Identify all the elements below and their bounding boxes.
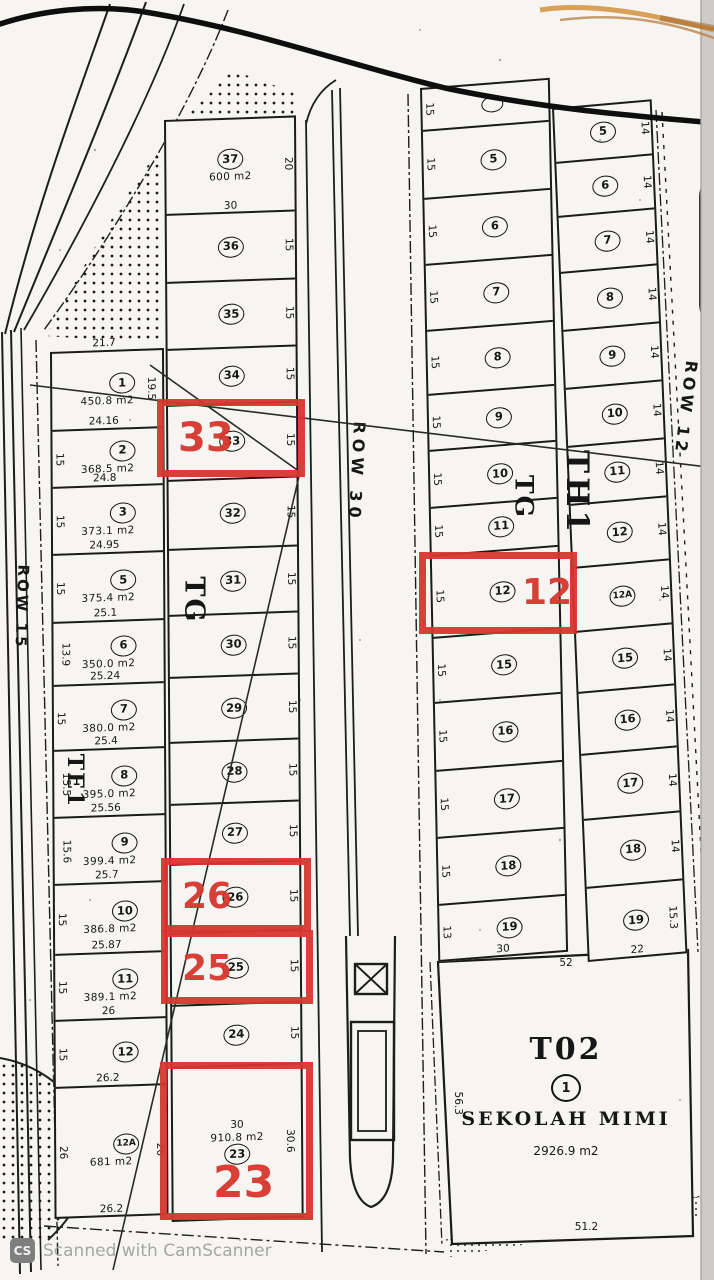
plot-number: 28 xyxy=(221,761,247,783)
plot-area-label: 375.4 m2 xyxy=(81,591,135,605)
dimension-label: 15 xyxy=(430,415,441,429)
plot-cell: 1615 xyxy=(435,692,562,770)
highlight-number: 26 xyxy=(182,879,232,915)
plot-number: 9 xyxy=(599,344,626,367)
highlight-number: 33 xyxy=(178,418,234,458)
dimension-label: 19.5 xyxy=(145,377,156,401)
plot-cell: 3415 xyxy=(168,344,296,404)
dimension-label: 20 xyxy=(282,157,293,171)
school-block-code: T02 xyxy=(529,1032,602,1067)
plot-number: 12A xyxy=(113,1133,139,1155)
dimension-label: 15 xyxy=(283,238,294,252)
plot-number: 10 xyxy=(601,402,628,425)
dimension-label: 14 xyxy=(658,585,669,599)
dimension-label: 51.2 xyxy=(575,1222,598,1233)
camscanner-text: Scanned with CamScanner xyxy=(43,1241,272,1261)
plot-number: 6 xyxy=(592,174,619,197)
plot-number: 19 xyxy=(496,916,522,939)
plot-number: 12A xyxy=(609,584,636,607)
highlight-box-plot-33: 33 xyxy=(157,399,305,477)
dimension-label: 14 xyxy=(661,647,672,661)
dimension-label: 15 xyxy=(285,504,296,518)
dimension-label: 15 xyxy=(285,572,296,586)
dimension-label: 15 xyxy=(55,711,66,725)
plot-number xyxy=(481,95,503,113)
plot-cell: 915 xyxy=(428,384,555,450)
plot-number: 24 xyxy=(223,1024,249,1046)
plot-number: 8 xyxy=(111,765,137,787)
highlight-number: 12 xyxy=(522,575,572,611)
dimension-label: 13.9 xyxy=(60,642,71,666)
dimension-label: 14 xyxy=(669,839,680,853)
plot-cell: 814 xyxy=(561,263,659,329)
plot-number: 12 xyxy=(113,1041,139,1063)
dimension-label: 25.7 xyxy=(92,870,121,882)
block-label-tg-west: TG xyxy=(179,576,210,623)
dimension-label: 15 xyxy=(57,981,68,995)
plot-cell: 1714 xyxy=(581,745,679,818)
plot-cell: 615 xyxy=(424,188,551,264)
dimension-label: 15 xyxy=(438,797,449,811)
plot-number: 15 xyxy=(491,653,517,676)
plot-number: 32 xyxy=(220,502,246,524)
dimension-label: 26.2 xyxy=(100,1203,123,1214)
dimension-label: 15 xyxy=(55,582,66,596)
dimension-label: 24.8 xyxy=(90,473,119,485)
dimension-label: 15 xyxy=(287,763,298,777)
dimension-label: 26 xyxy=(99,1006,118,1017)
dimension-label: 14 xyxy=(650,403,661,417)
plot-cell: 3515 xyxy=(167,277,295,348)
plot-cell: 2815 xyxy=(170,737,298,803)
plot-number: 11 xyxy=(112,968,138,990)
dimension-label: 15 xyxy=(435,663,446,677)
plot-number: 34 xyxy=(219,365,245,387)
plot-cell: 614 xyxy=(556,153,654,215)
dimension-label: 15.6 xyxy=(61,839,72,863)
dimension-label: 25.87 xyxy=(88,940,124,952)
plot-cell: 815 xyxy=(427,320,554,394)
dimension-label: 14 xyxy=(641,175,652,189)
plot-cell: 1814 xyxy=(584,810,682,886)
dimension-label: 15 xyxy=(54,514,65,528)
plot-cell: 2415 xyxy=(172,1000,300,1066)
dimension-label: 14 xyxy=(643,230,654,244)
plot-area-label: 600 m2 xyxy=(209,170,252,183)
plot-number: 5 xyxy=(110,569,136,591)
dimension-label: 15 xyxy=(437,729,448,743)
plot-cell: 1915.322 xyxy=(587,878,686,959)
plot-number: 8 xyxy=(484,346,510,369)
plot-number: 7 xyxy=(594,229,621,252)
highlight-number: 25 xyxy=(182,951,232,987)
plot-number: 29 xyxy=(221,697,247,719)
plot-number: 11 xyxy=(604,460,631,483)
plot-number: 17 xyxy=(617,771,644,794)
road-label-row15: ROW 15 xyxy=(12,564,33,650)
plot-number: 9 xyxy=(486,406,512,429)
plot-cell: 914 xyxy=(563,321,661,387)
plot-cell: 26.212A681 m2262626.2 xyxy=(56,1083,167,1217)
dimension-label: 15 xyxy=(283,305,294,319)
dimension-label: 15 xyxy=(429,355,440,369)
plot-number: 18 xyxy=(620,838,647,861)
plot-number: 30 xyxy=(221,634,247,656)
plot-number: 16 xyxy=(614,708,641,731)
plot-number: 12 xyxy=(606,520,633,543)
camscanner-watermark: CS Scanned with CamScanner xyxy=(10,1238,272,1263)
plot-cell: 1815 xyxy=(438,827,565,904)
plot-cell: 3615 xyxy=(167,209,295,281)
plot-column-col3: 1551561571581591510151115121515151615171… xyxy=(420,78,568,962)
highlight-box-plot-26: 26 xyxy=(161,858,311,932)
plot-cell: 37600 m22030 xyxy=(166,117,295,213)
plot-number: 8 xyxy=(597,286,624,309)
block-label-te1: TE1 xyxy=(62,754,88,808)
dimension-label: 15 xyxy=(425,157,436,171)
plot-number: 7 xyxy=(111,699,137,721)
dimension-label: 15 xyxy=(424,102,435,116)
plot-number: 2 xyxy=(109,440,135,462)
plot-area-label: 373.1 m2 xyxy=(81,524,135,538)
dimension-label: 13 xyxy=(441,925,452,939)
dimension-label: 26 xyxy=(58,1146,69,1160)
plot-cell: 714 xyxy=(559,207,657,271)
plot-area-label: 399.4 m2 xyxy=(83,854,137,868)
plot-area-label: 450.8 m2 xyxy=(80,394,134,408)
plot-number: 16 xyxy=(492,720,518,743)
school-plot: 52 T02 1 SEKOLAH MIMI 2926.9 m2 51.2 56.… xyxy=(438,950,694,1246)
dimension-label: 15.3 xyxy=(666,905,677,929)
plot-number: 5 xyxy=(590,120,617,143)
dimension-label: 15 xyxy=(287,824,298,838)
dimension-label: 14 xyxy=(655,521,666,535)
plot-number: 3 xyxy=(110,502,136,524)
plot-number: 9 xyxy=(112,832,138,854)
plot-number: 6 xyxy=(110,635,136,657)
dimension-label: 15 xyxy=(440,864,451,878)
dimension-label: 24.95 xyxy=(86,540,122,552)
school-area-label: 2926.9 m2 xyxy=(533,1144,598,1158)
dimension-label: 15 xyxy=(433,524,444,538)
highlight-number: 23 xyxy=(213,1161,274,1205)
dimension-label: 14 xyxy=(653,461,664,475)
dimension-label: 25.56 xyxy=(88,803,124,815)
dimension-label: 56.3 xyxy=(452,1092,463,1115)
dimension-label: 25.4 xyxy=(91,736,120,748)
school-name: SEKOLAH MIMI xyxy=(461,1108,670,1130)
plot-area-label: 386.8 m2 xyxy=(83,922,137,936)
plot-area-label: 389.1 m2 xyxy=(84,990,138,1004)
dimension-label: 15 xyxy=(286,636,297,650)
dimension-label: 15 xyxy=(428,290,439,304)
school-plot-number: 1 xyxy=(551,1074,581,1102)
dimension-label: 15 xyxy=(284,367,295,381)
camscanner-badge: CS xyxy=(10,1238,35,1263)
plot-cell: 2915 xyxy=(170,672,298,741)
plot-number: 18 xyxy=(495,854,521,877)
plot-number: 1 xyxy=(109,372,135,394)
plot-cell: 515 xyxy=(423,120,550,198)
dimension-label: 26.2 xyxy=(93,1073,122,1085)
dimension-label: 15 xyxy=(286,699,297,713)
dimension-label: 21.7 xyxy=(89,338,118,350)
dimension-label: 25.1 xyxy=(91,608,120,620)
plot-cell: 1515 xyxy=(433,627,560,702)
plot-number: 35 xyxy=(218,303,244,325)
plot-number: 15 xyxy=(612,646,639,669)
plot-number: 7 xyxy=(483,281,509,304)
plot-number: 6 xyxy=(482,215,508,238)
highlight-box-plot-12: 12 xyxy=(419,552,577,634)
plot-column-col2: 37600 m220303615351534153315321531153015… xyxy=(164,115,304,1222)
plot-number: 10 xyxy=(112,900,138,922)
dimension-label: 15 xyxy=(426,224,437,238)
plot-cell: 715 xyxy=(426,254,553,330)
block-label-th1: TH1 xyxy=(559,450,595,536)
dimension-label: 14 xyxy=(666,772,677,786)
plot-cell: 1715 xyxy=(436,760,563,837)
plot-cell: 1514 xyxy=(576,622,674,691)
dimension-label: 15 xyxy=(56,913,67,927)
plot-number: 17 xyxy=(494,787,520,810)
scanned-plot-map: 21.71450.8 m219.524.162368.5 m21524.8337… xyxy=(0,0,714,1280)
plot-area-label: 350.0 m2 xyxy=(82,657,136,671)
dimension-label: 14 xyxy=(646,287,657,301)
plot-cell: 1014 xyxy=(566,379,664,445)
plot-number: 5 xyxy=(480,148,506,171)
plot-cell: 3215 xyxy=(169,475,297,548)
plot-number: 36 xyxy=(218,236,244,258)
plot-cell: 1614 xyxy=(578,683,676,753)
plot-number: 37 xyxy=(217,148,243,170)
dimension-label: 15 xyxy=(431,472,442,486)
highlight-box-plot-25: 25 xyxy=(161,930,313,1004)
plot-area-label: 380.0 m2 xyxy=(82,721,136,735)
dimension-label: 14 xyxy=(639,121,650,135)
plot-number: 31 xyxy=(220,570,246,592)
dimension-label: 24.16 xyxy=(86,416,122,428)
plot-cell: 12A14 xyxy=(573,558,671,630)
plot-number: 27 xyxy=(222,822,248,844)
dimension-label: 14 xyxy=(663,709,674,723)
plot-number: 19 xyxy=(623,908,650,931)
plot-area-label: 681 m2 xyxy=(90,1155,133,1168)
plot-area-label: 395.0 m2 xyxy=(83,787,137,801)
dimension-label: 30 xyxy=(224,200,237,211)
dimension-label: 15 xyxy=(57,1047,68,1061)
highlight-box-plot-23: 23 xyxy=(160,1062,313,1220)
block-label-tg-east: TG xyxy=(510,475,539,519)
dimension-label: 14 xyxy=(648,345,659,359)
dimension-label: 15 xyxy=(54,452,65,466)
dimension-label: 25.24 xyxy=(87,671,123,683)
plot-cell: 514 xyxy=(554,101,652,161)
plot-cell: 2715 xyxy=(171,799,299,863)
dimension-label: 15 xyxy=(288,1026,299,1040)
dimension-label: 52 xyxy=(559,958,572,969)
